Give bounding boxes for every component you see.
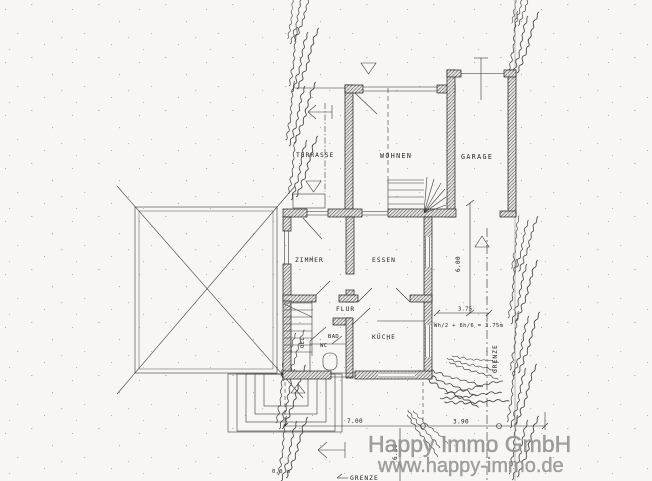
dim-bottom-left: 7.00 [347, 418, 363, 425]
room-label-oel: OEL [300, 337, 306, 348]
room-label-terrasse: TERRASSE [296, 152, 334, 159]
boundary-label-bottom: GRENZE [350, 475, 379, 481]
room-label-garage: GARAGE [461, 153, 493, 161]
room-label-wohnen: WOHNEN [380, 152, 412, 160]
room-label-essen: ESSEN [372, 257, 396, 264]
watermark: Happy Immo GmbH www.happy-immo.de [368, 431, 571, 477]
watermark-line2: www.happy-immo.de [377, 455, 564, 477]
dim-right-height: 6.00 [455, 256, 462, 272]
boundary-label-right: GRENZE [492, 344, 499, 373]
level-mark: 0,0 m [272, 469, 290, 475]
room-label-bad: BAD [328, 334, 339, 340]
room-label-kueche: KÜCHE [372, 332, 396, 341]
room-label-flur: FLUR [336, 306, 355, 313]
room-label-wc: WC [320, 343, 327, 349]
dim-setback-formula: Wh/2 + 6h/6 = 3.75m [434, 323, 503, 329]
watermark-line1: Happy Immo GmbH [368, 431, 571, 457]
room-label-zimmer: ZIMMER [295, 257, 324, 264]
dim-bottom-right: 3.90 [453, 419, 469, 426]
dim-right-width: 3.75 [458, 307, 473, 313]
floor-plan-canvas: 6.00 3.75 Wh/2 + 6h/6 = 3.75m 7.00 3.90 … [0, 0, 652, 481]
floorplan-scan: 6.00 3.75 Wh/2 + 6h/6 = 3.75m 7.00 3.90 … [0, 0, 652, 481]
